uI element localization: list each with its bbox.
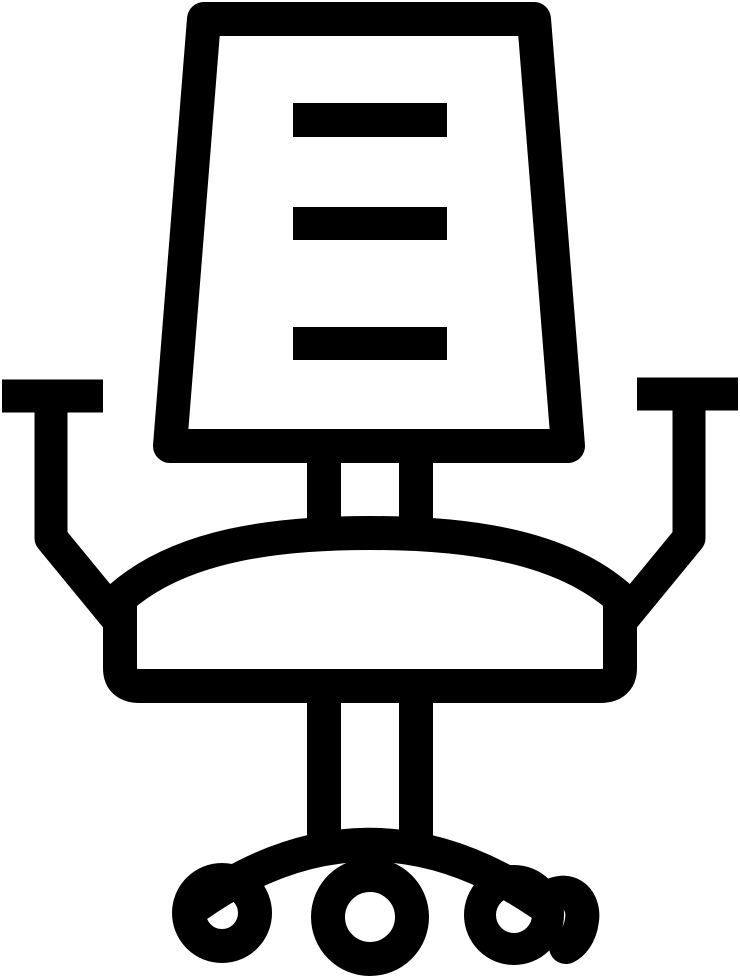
office-chair-icon [0, 0, 740, 980]
backrest-slat-middle [293, 207, 447, 240]
left-wheel [189, 880, 255, 946]
center-wheel [328, 875, 412, 959]
seat-shape [120, 533, 620, 686]
right-armrest [620, 394, 738, 622]
left-armrest [2, 396, 120, 622]
right-wheel [480, 881, 548, 949]
backrest-slat-top [293, 103, 447, 137]
backrest-slat-bottom [293, 327, 447, 360]
backrest-slats [293, 103, 447, 360]
office-chair-icon-canvas [0, 0, 740, 980]
